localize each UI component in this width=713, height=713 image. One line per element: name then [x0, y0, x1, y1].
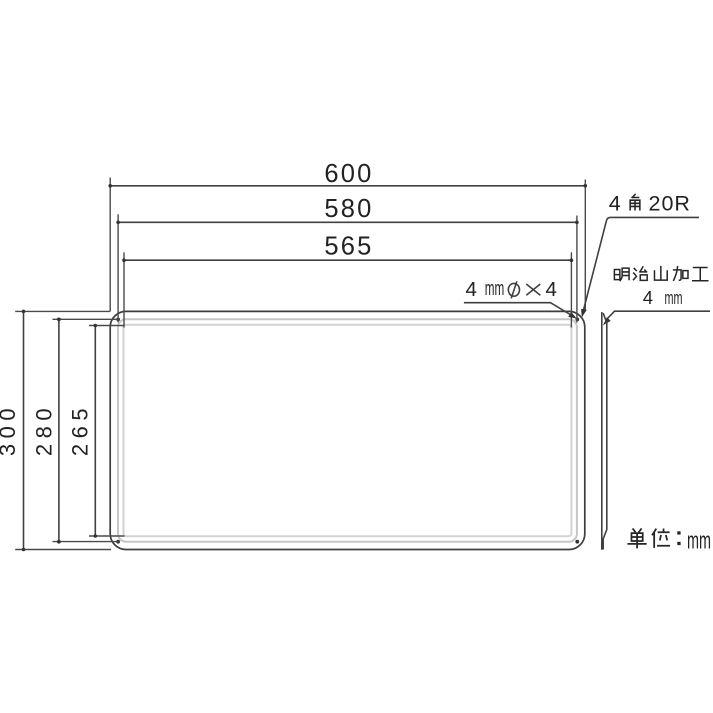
svg-text:265: 265: [68, 403, 93, 456]
svg-text:4: 4: [546, 278, 557, 301]
svg-text:565: 565: [324, 232, 373, 260]
svg-text:600: 600: [324, 160, 373, 188]
svg-text:mm: mm: [485, 278, 505, 300]
svg-text:300: 300: [0, 403, 20, 456]
svg-text:mm: mm: [687, 528, 711, 555]
svg-text:4: 4: [466, 278, 477, 301]
svg-text:20R: 20R: [649, 191, 691, 215]
svg-text:4: 4: [643, 287, 653, 308]
svg-text:mm: mm: [665, 288, 683, 308]
svg-text:4: 4: [609, 191, 621, 215]
svg-text:580: 580: [324, 195, 373, 223]
svg-text:280: 280: [31, 403, 56, 456]
